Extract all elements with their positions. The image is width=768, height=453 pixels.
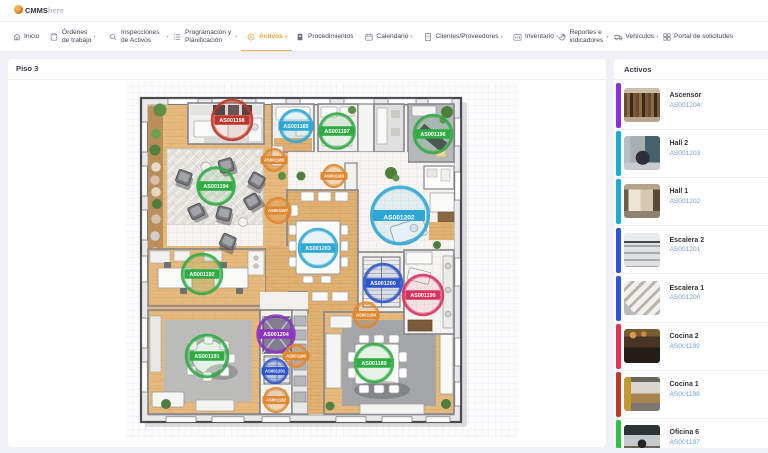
svg-text:AS001188: AS001188 — [286, 354, 307, 359]
svg-text:AS001192: AS001192 — [189, 272, 214, 278]
svg-text:AS001186: AS001186 — [264, 158, 285, 163]
svg-text:AS001199: AS001199 — [410, 293, 435, 299]
svg-text:AS001185: AS001185 — [283, 124, 308, 130]
svg-text:AS001182: AS001182 — [266, 398, 287, 403]
svg-text:AS001201: AS001201 — [265, 369, 286, 374]
svg-text:AS001187: AS001187 — [268, 208, 289, 213]
svg-text:AS001202: AS001202 — [383, 214, 414, 221]
svg-text:AS001191: AS001191 — [194, 354, 219, 360]
svg-text:AS001183: AS001183 — [324, 174, 345, 179]
svg-text:AS001198: AS001198 — [219, 118, 244, 124]
svg-text:AS001194: AS001194 — [203, 184, 228, 190]
svg-text:AS001203: AS001203 — [305, 246, 330, 252]
svg-text:AS001197: AS001197 — [324, 129, 349, 135]
svg-text:AS001184: AS001184 — [356, 313, 377, 318]
svg-text:AS001200: AS001200 — [370, 281, 395, 287]
svg-text:AS001196: AS001196 — [420, 132, 445, 138]
svg-text:AS001204: AS001204 — [263, 332, 288, 338]
svg-text:AS001189: AS001189 — [361, 361, 386, 367]
